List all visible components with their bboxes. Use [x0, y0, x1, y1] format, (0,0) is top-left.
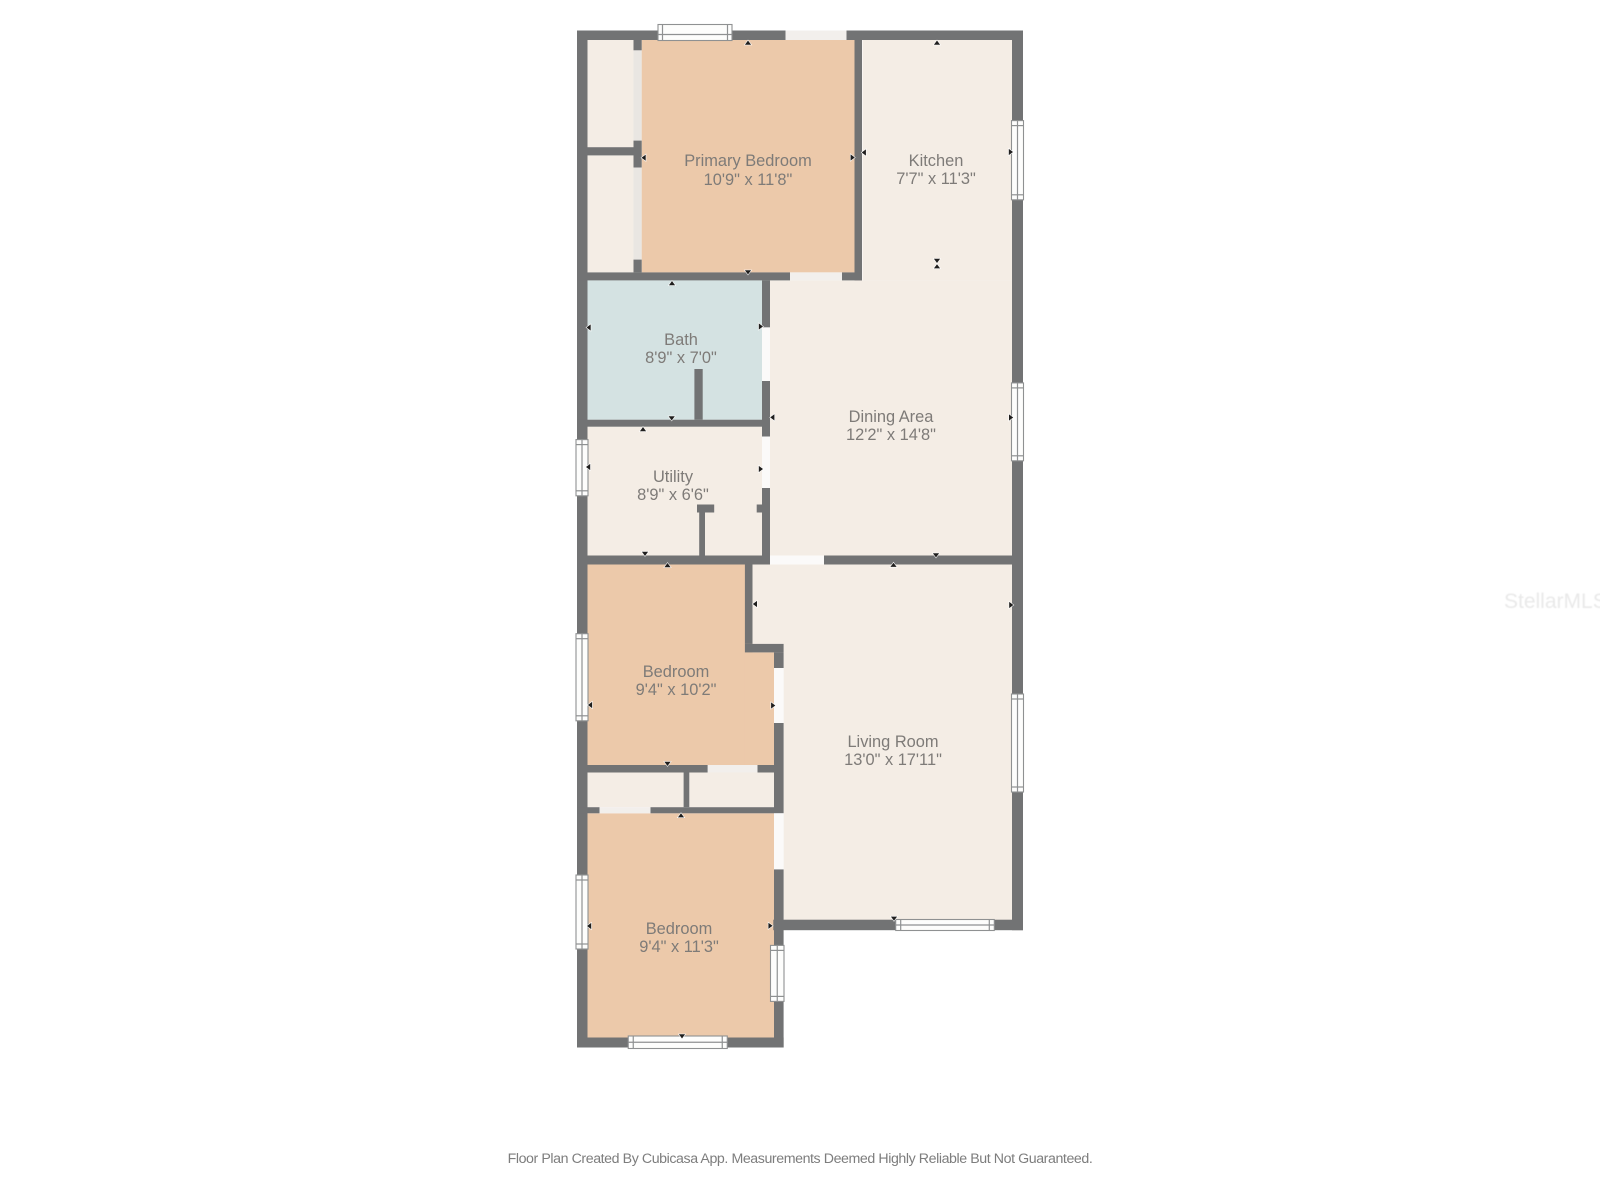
svg-text:Living Room: Living Room	[847, 733, 938, 751]
svg-text:Bedroom: Bedroom	[646, 920, 713, 938]
svg-text:10'9" x 11'8": 10'9" x 11'8"	[704, 171, 793, 189]
svg-text:Utility: Utility	[653, 468, 694, 486]
svg-text:12'2" x 14'8": 12'2" x 14'8"	[846, 426, 936, 444]
svg-text:8'9" x 7'0": 8'9" x 7'0"	[645, 349, 717, 367]
svg-text:Kitchen: Kitchen	[909, 152, 964, 170]
svg-text:Dining Area: Dining Area	[849, 408, 935, 426]
svg-text:Bedroom: Bedroom	[643, 663, 710, 681]
svg-text:9'4" x 11'3": 9'4" x 11'3"	[639, 938, 719, 956]
svg-text:9'4" x 10'2": 9'4" x 10'2"	[636, 681, 717, 699]
svg-text:8'9" x 6'6": 8'9" x 6'6"	[637, 486, 709, 504]
svg-text:Bath: Bath	[664, 331, 698, 349]
svg-text:7'7" x 11'3": 7'7" x 11'3"	[896, 170, 976, 188]
svg-text:13'0" x 17'11": 13'0" x 17'11"	[844, 751, 942, 769]
svg-text:Primary Bedroom: Primary Bedroom	[684, 152, 812, 170]
